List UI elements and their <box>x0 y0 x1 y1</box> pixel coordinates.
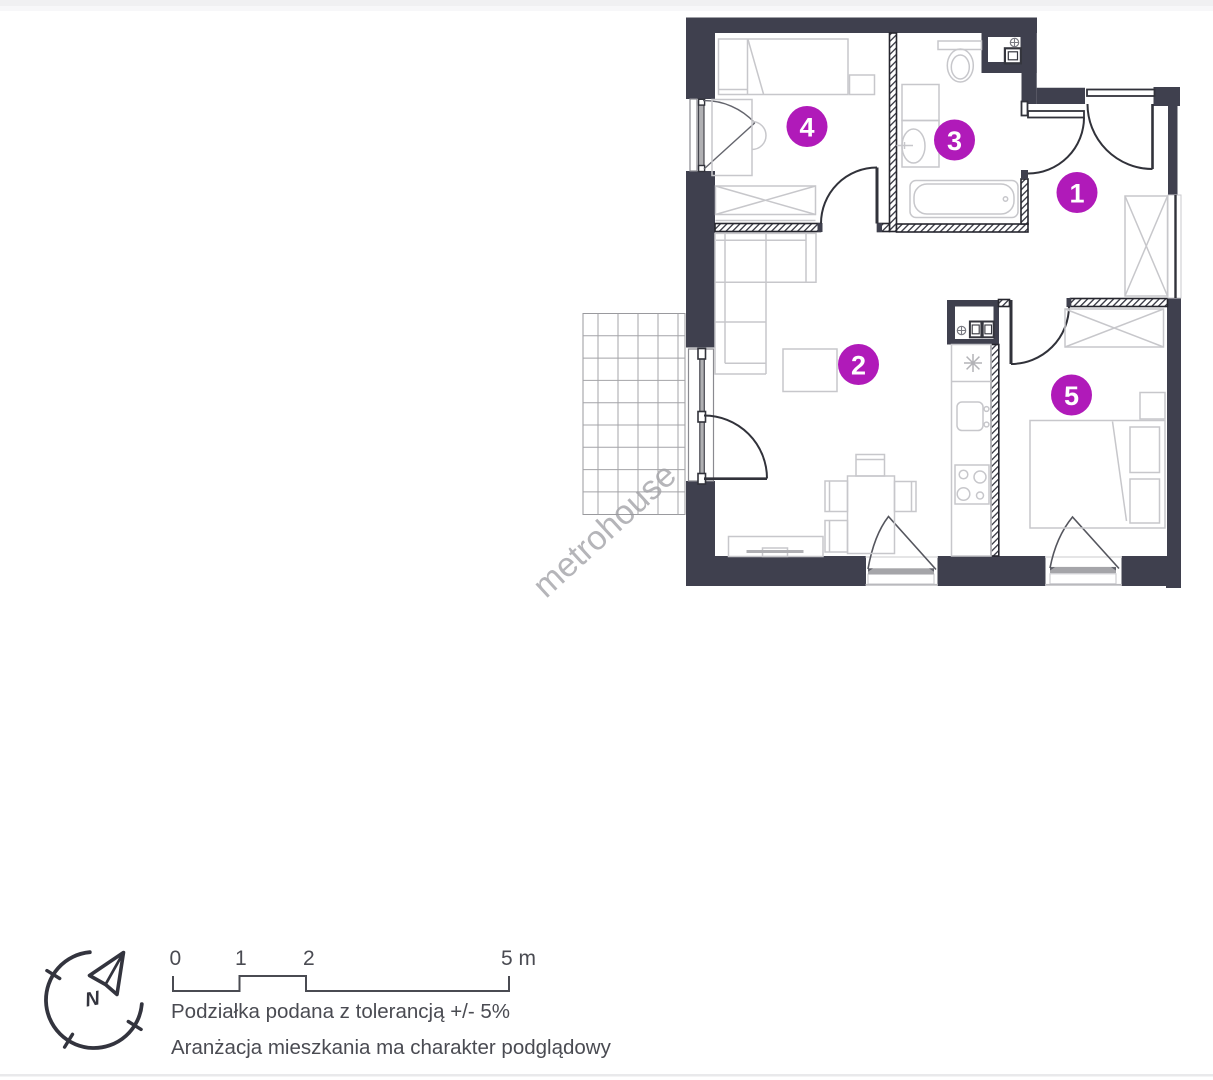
svg-text:2: 2 <box>851 351 866 381</box>
svg-text:0: 0 <box>170 947 182 970</box>
svg-text:5 m: 5 m <box>501 947 536 970</box>
svg-text:2: 2 <box>303 947 315 970</box>
svg-text:Aranżacja mieszkania ma charak: Aranżacja mieszkania ma charakter podglą… <box>171 1036 612 1059</box>
svg-text:5: 5 <box>1064 381 1079 411</box>
svg-text:3: 3 <box>947 126 962 156</box>
svg-text:Podziałka podana z tolerancją: Podziałka podana z tolerancją +/- 5% <box>171 1000 510 1023</box>
svg-text:1: 1 <box>1069 179 1084 209</box>
svg-text:4: 4 <box>799 113 814 143</box>
svg-text:1: 1 <box>235 947 247 970</box>
